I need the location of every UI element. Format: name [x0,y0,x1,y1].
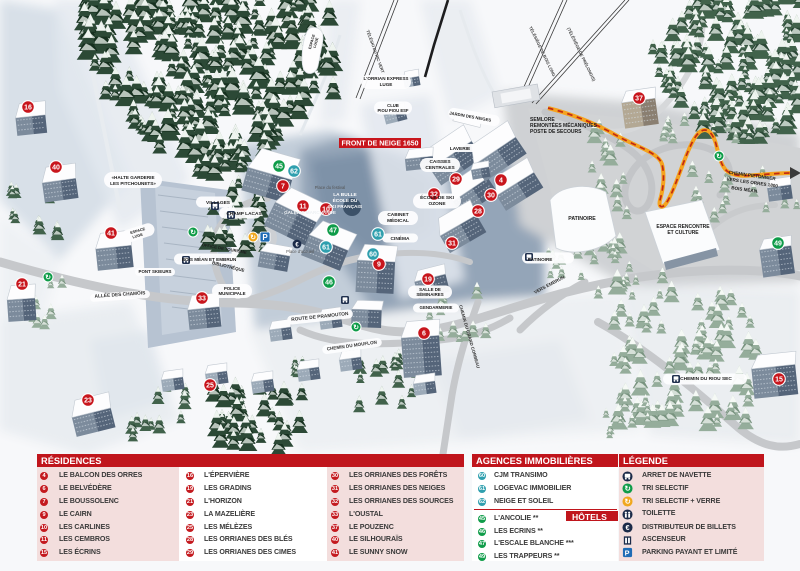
svg-text:40: 40 [52,165,60,172]
svg-text:21: 21 [18,282,26,289]
svg-text:7: 7 [281,184,285,191]
svg-text:62: 62 [290,169,298,176]
svg-text:61: 61 [374,232,382,239]
svg-text:↻: ↻ [353,325,359,332]
svg-text:LAVERIE: LAVERIE [450,146,471,152]
svg-text:LA BULLE: LA BULLE [333,192,357,198]
svg-text:«HALTE GARDERIE: «HALTE GARDERIE [111,175,154,180]
svg-text:P: P [262,233,268,242]
svg-text:16: 16 [24,105,32,112]
svg-text:↻: ↻ [624,497,630,506]
svg-text:PONT SKIEURS: PONT SKIEURS [139,269,172,274]
svg-text:ET CULTURE: ET CULTURE [667,230,699,236]
svg-text:SÉMINAIRES: SÉMINAIRES [416,292,443,297]
svg-text:6: 6 [422,331,426,338]
svg-text:↻: ↻ [190,230,196,237]
svg-text:OZONE: OZONE [428,201,446,207]
svg-text:37: 37 [635,96,643,103]
svg-text:POSTE DE SECOURS: POSTE DE SECOURS [530,129,582,135]
svg-text:60: 60 [369,252,377,259]
svg-text:19: 19 [424,277,432,284]
svg-text:P: P [624,548,629,557]
svg-text:28: 28 [474,209,482,216]
svg-text:PATINOIRE: PATINOIRE [568,216,596,222]
svg-text:31: 31 [448,241,456,248]
svg-text:49: 49 [774,241,782,248]
svg-text:↻: ↻ [716,154,722,161]
svg-text:LES PITCHOUNETS»: LES PITCHOUNETS» [110,181,156,186]
svg-text:GALERIE MARCHANDE: GALERIE MARCHANDE [284,210,336,215]
svg-text:CHAMP LACAS: CHAMP LACAS [226,211,262,217]
svg-text:PIOU PIOU ESF: PIOU PIOU ESF [378,108,409,113]
svg-text:LUGE: LUGE [380,82,393,87]
svg-text:REMONTÉES MÉCANIQUES: REMONTÉES MÉCANIQUES [530,121,598,129]
svg-text:FRONT DE NEIGE 1650: FRONT DE NEIGE 1650 [341,141,418,148]
svg-text:L'ORRIAN EXPRESS: L'ORRIAN EXPRESS [364,76,409,81]
svg-text:9: 9 [377,262,381,269]
svg-text:61: 61 [322,245,330,252]
svg-text:47: 47 [329,228,337,235]
svg-text:23: 23 [84,398,92,405]
svg-text:46: 46 [325,280,333,287]
svg-text:PATINOIRE: PATINOIRE [528,257,552,262]
svg-text:↻: ↻ [624,484,630,493]
svg-text:CABINET: CABINET [387,212,408,218]
svg-text:33: 33 [198,296,206,303]
svg-text:4: 4 [499,178,503,185]
svg-text:CHEMIN DU RIOU SEC: CHEMIN DU RIOU SEC [680,376,732,382]
svg-text:CAISSES: CAISSES [429,159,451,165]
svg-text:41: 41 [107,231,115,238]
svg-text:29: 29 [452,177,460,184]
svg-text:€: € [625,523,629,532]
svg-text:Place du festival: Place du festival [315,185,346,190]
svg-text:15: 15 [775,377,783,384]
svg-text:45: 45 [275,164,283,171]
svg-text:25: 25 [206,383,214,390]
svg-text:MUNICIPALE: MUNICIPALE [219,291,246,296]
svg-text:GENDARMERIE: GENDARMERIE [420,305,453,310]
svg-text:CENTRALES: CENTRALES [425,165,455,171]
svg-text:↻: ↻ [45,275,51,282]
svg-text:↻: ↻ [250,235,256,242]
svg-text:BOIS MÉAN ET EMBRUN: BOIS MÉAN ET EMBRUN [182,255,237,262]
svg-text:30: 30 [487,193,495,200]
svg-text:Place d'accueil: Place d'accueil [286,249,314,254]
svg-text:VILLAGES: VILLAGES [206,200,231,206]
